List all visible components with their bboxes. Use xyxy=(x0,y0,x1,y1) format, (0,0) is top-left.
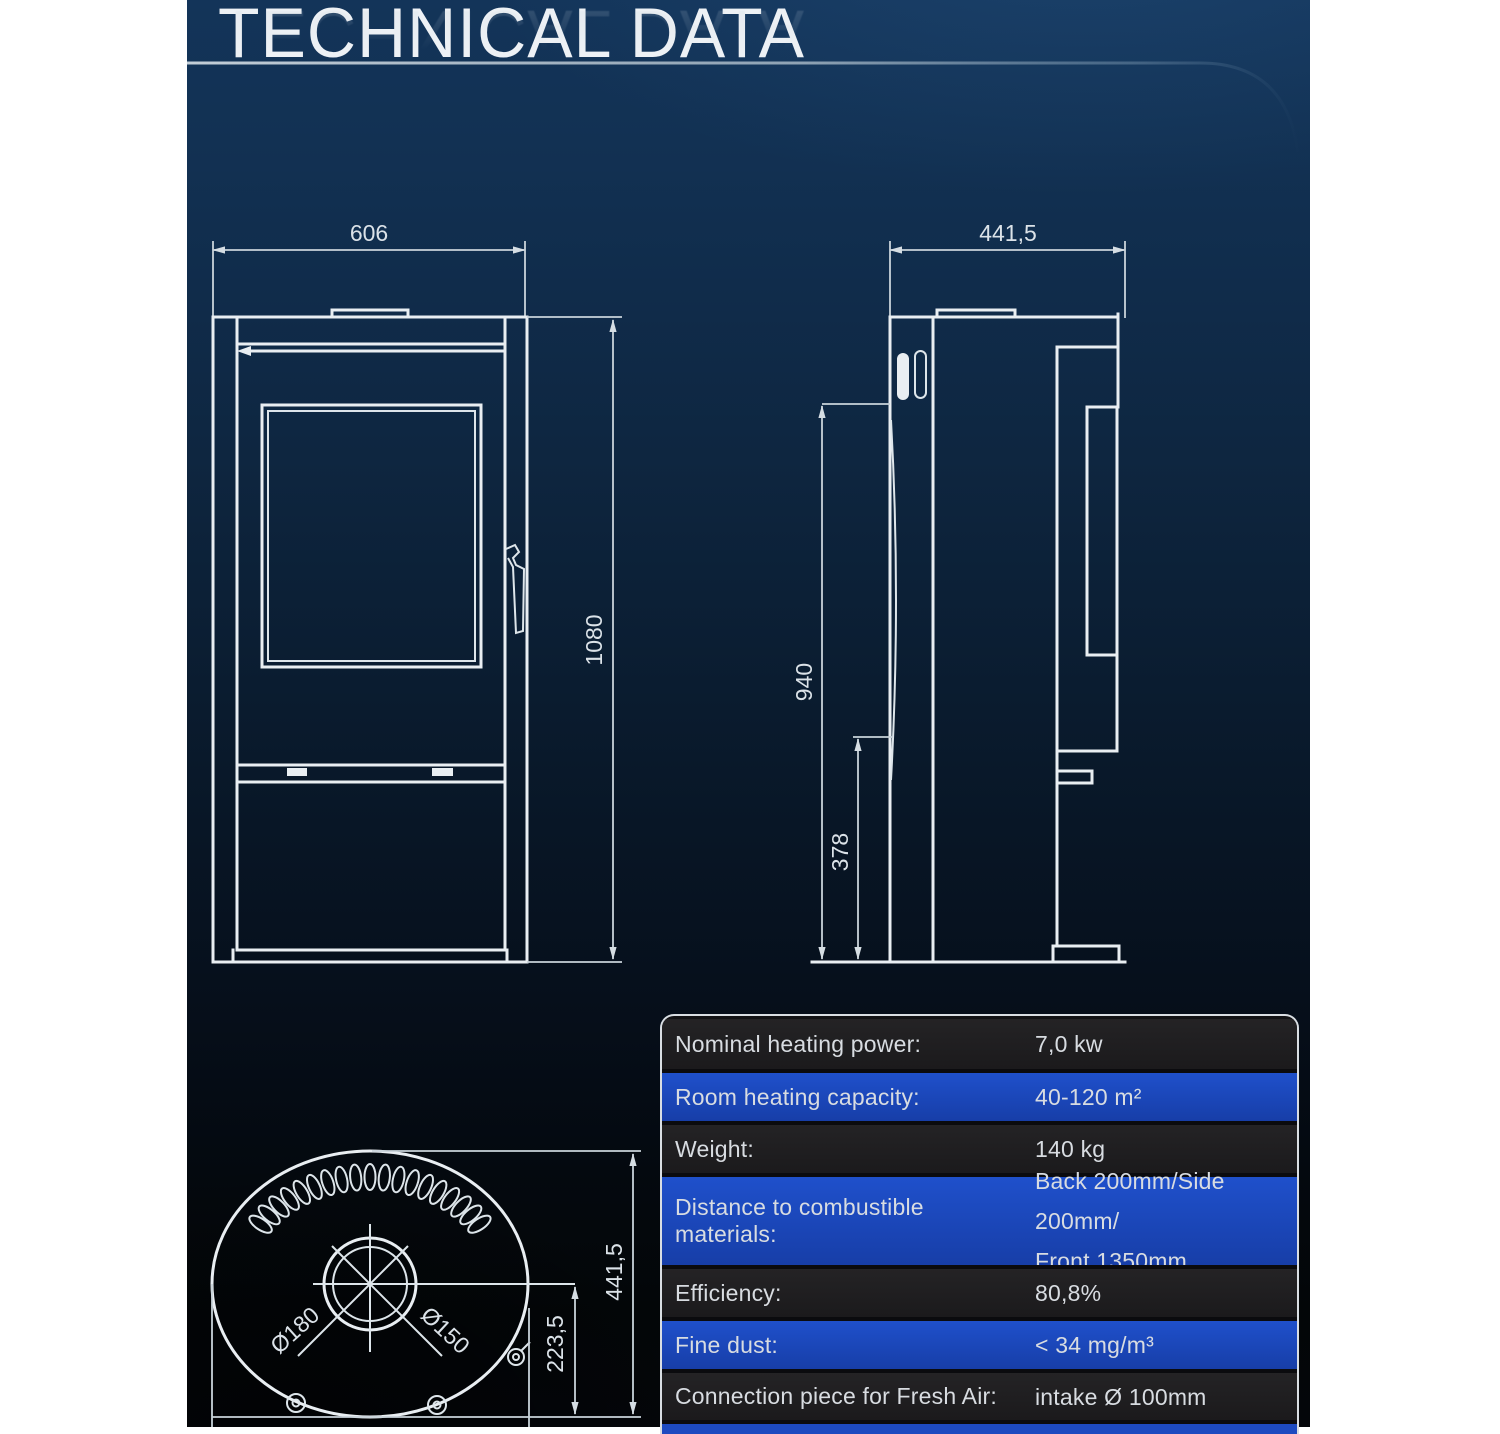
table-row-cutoff xyxy=(662,1420,1297,1434)
row-value: 80,8% xyxy=(1035,1273,1101,1313)
table-row: Nominal heating power: 7,0 kw xyxy=(662,1019,1297,1069)
top-flue-offset-dimension: 223,5 xyxy=(542,1315,568,1373)
table-row: Efficiency: 80,8% xyxy=(662,1265,1297,1317)
front-view: 606 xyxy=(213,220,622,962)
side-view: 441,5 xyxy=(791,220,1125,962)
row-label: Connection piece for Fresh Air: xyxy=(662,1383,997,1410)
row-label: Room heating capacity: xyxy=(662,1084,920,1111)
side-depth-dimension: 441,5 xyxy=(979,220,1037,246)
top-depth-dimension: 441,5 xyxy=(601,1243,627,1301)
side-height-dimension: 940 xyxy=(791,663,817,701)
flue-outer-diameter-label: Ø180 xyxy=(265,1302,324,1359)
row-value: intake Ø 100mm xyxy=(1035,1377,1207,1417)
page: TECHNICAL DATA TECHNICAL DATA xyxy=(0,0,1500,1427)
table-row: Fine dust: < 34 mg/m³ xyxy=(662,1317,1297,1369)
row-value: < 34 mg/m³ xyxy=(1035,1325,1154,1365)
row-label: Nominal heating power: xyxy=(662,1031,921,1058)
table-row: Connection piece for Fresh Air: intake Ø… xyxy=(662,1369,1297,1420)
row-value: 7,0 kw xyxy=(1035,1024,1103,1064)
top-view: Ø180 Ø150 441,5 223,5 xyxy=(212,1151,641,1427)
row-value: 40-120 m² xyxy=(1035,1077,1142,1117)
table-row: Room heating capacity: 40-120 m² xyxy=(662,1069,1297,1121)
row-label: Distance to combustible materials: xyxy=(662,1194,1030,1248)
row-label: Weight: xyxy=(662,1136,754,1163)
front-width-dimension: 606 xyxy=(350,220,388,246)
front-height-dimension: 1080 xyxy=(581,614,607,665)
side-flue-height-dimension: 378 xyxy=(827,833,853,871)
table-row: Distance to combustible materials: Back … xyxy=(662,1173,1297,1265)
title-underline xyxy=(187,63,1298,152)
row-value: Back 200mm/Side 200mm/Front 1350mm xyxy=(1035,1161,1297,1281)
flue-inner-diameter-label: Ø150 xyxy=(416,1301,475,1358)
row-label: Fine dust: xyxy=(662,1332,778,1359)
row-label: Efficiency: xyxy=(662,1280,782,1307)
spec-table: Nominal heating power: 7,0 kw Room heati… xyxy=(660,1014,1299,1434)
